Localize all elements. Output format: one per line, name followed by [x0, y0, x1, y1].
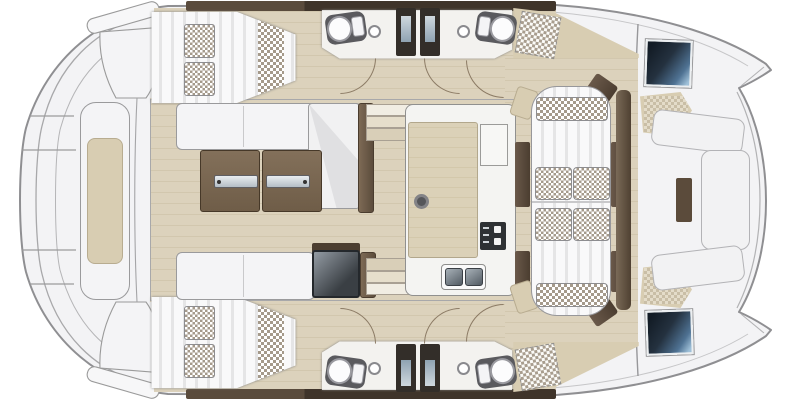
aft-bench-cushion [87, 138, 123, 264]
pillow-checkered [184, 344, 215, 378]
lounge-seam [532, 201, 611, 203]
port-berth [150, 8, 300, 106]
foredeck-console [676, 178, 692, 222]
toilet [474, 10, 518, 45]
counter-hatch [480, 124, 508, 166]
cool-box [312, 250, 360, 298]
stove-bar [483, 227, 489, 229]
sink-bowl [445, 268, 463, 286]
foredeck-cushion-front [701, 150, 750, 250]
hull-steps-checkered [515, 11, 562, 59]
toilet [324, 354, 368, 389]
shower-glass [401, 16, 411, 42]
mast-beam [616, 90, 631, 310]
pillow-checkered [184, 306, 215, 340]
starboard-berth [150, 294, 300, 392]
deck-hatch [644, 39, 693, 88]
pillow-checkered [184, 62, 215, 96]
sofa-seam [243, 106, 244, 147]
starboard-berth-mattress [150, 294, 300, 392]
shower-column [420, 8, 440, 56]
stove-knob [494, 238, 501, 245]
galley-double-sink [441, 264, 486, 290]
shower-glass [401, 360, 411, 386]
basin [368, 25, 381, 38]
shower-glass [425, 360, 435, 386]
table-latch-dot [217, 180, 221, 184]
pillow-checkered [573, 167, 610, 200]
stove-bar [483, 234, 489, 236]
stove-knob [494, 226, 501, 233]
galley-island [408, 122, 478, 258]
lounge-checkered-band [536, 283, 608, 307]
sofa-seam [243, 255, 244, 297]
table-latch-dot [303, 180, 307, 184]
salon-bench-bottom [176, 252, 315, 300]
shower-glass [425, 16, 435, 42]
island-sink-hole [414, 194, 429, 209]
toilet [324, 10, 368, 45]
pillow-checkered [184, 24, 215, 58]
galley-stove [480, 222, 506, 250]
port-berth-mattress [150, 8, 300, 106]
catamaran-floorplan [0, 0, 802, 400]
companionway-post [515, 142, 530, 207]
hull-steps-checkered [515, 343, 562, 391]
berth-runner-checkered [258, 8, 284, 106]
stove-bar [483, 241, 489, 243]
pillow-checkered [535, 167, 572, 200]
pillow-checkered [573, 208, 610, 241]
sink-bowl [465, 268, 483, 286]
shower-column [420, 344, 440, 392]
cockpit-lounge-sunbed [531, 86, 611, 316]
toilet [474, 354, 518, 389]
basin [368, 362, 381, 375]
basin [457, 362, 470, 375]
toilet-tank [477, 363, 492, 384]
lounge-checkered-band [536, 97, 608, 121]
toilet-tank [351, 16, 366, 37]
deck-hatch [645, 309, 694, 356]
salon-wall-line-left [150, 99, 151, 301]
basin [457, 25, 470, 38]
pillow-checkered [535, 208, 572, 241]
shower-column [396, 8, 416, 56]
berth-runner-checkered [258, 294, 284, 392]
shower-column [396, 344, 416, 392]
